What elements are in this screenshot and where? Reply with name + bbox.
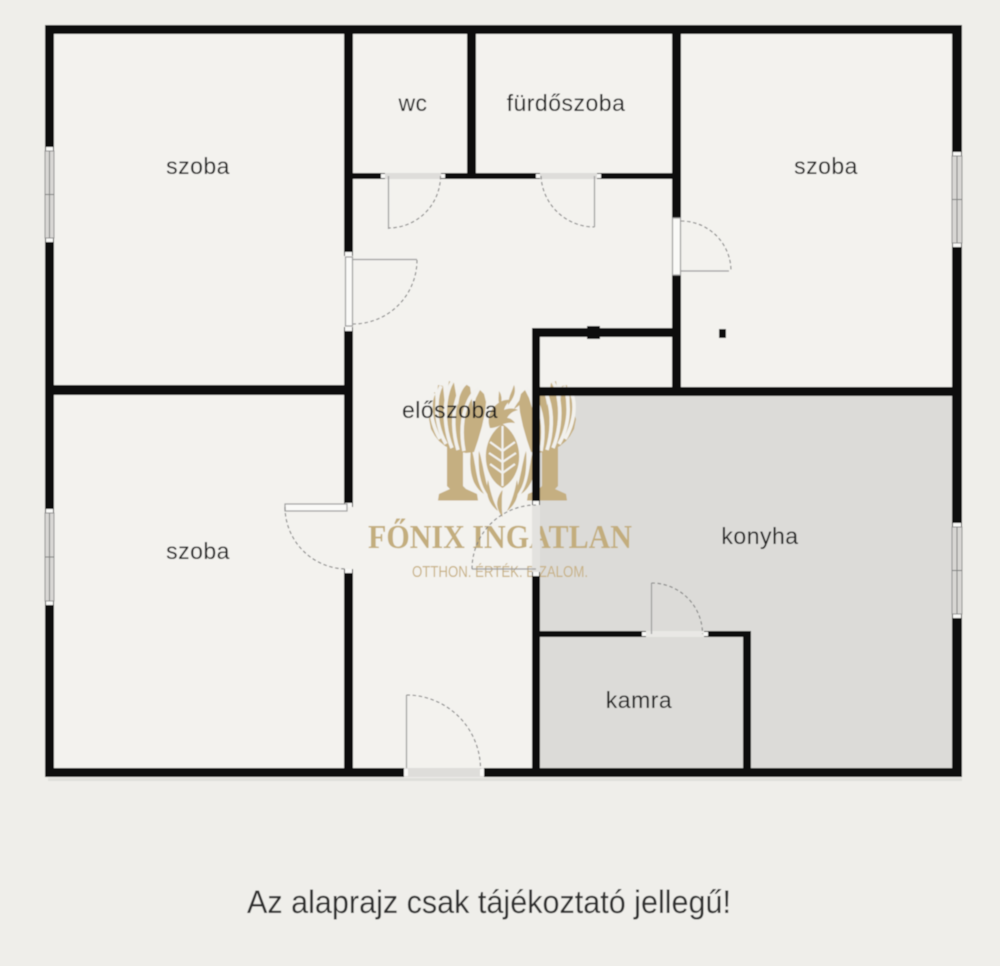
svg-text:FŐNIX INGATLAN: FŐNIX INGATLAN: [368, 518, 632, 556]
svg-text:OTTHON. ÉRTÉK. BIZALOM.: OTTHON. ÉRTÉK. BIZALOM.: [412, 562, 588, 581]
svg-text:szoba: szoba: [166, 538, 230, 564]
svg-text:wc: wc: [397, 90, 427, 116]
svg-text:szoba: szoba: [794, 153, 858, 179]
svg-text:szoba: szoba: [166, 153, 230, 179]
svg-text:Az alaprajz csak tájékoztató j: Az alaprajz csak tájékoztató jellegű!: [247, 884, 731, 920]
svg-text:előszoba: előszoba: [402, 397, 498, 423]
svg-text:kamra: kamra: [606, 687, 672, 713]
svg-text:fürdőszoba: fürdőszoba: [507, 90, 626, 116]
svg-text:konyha: konyha: [721, 523, 798, 549]
